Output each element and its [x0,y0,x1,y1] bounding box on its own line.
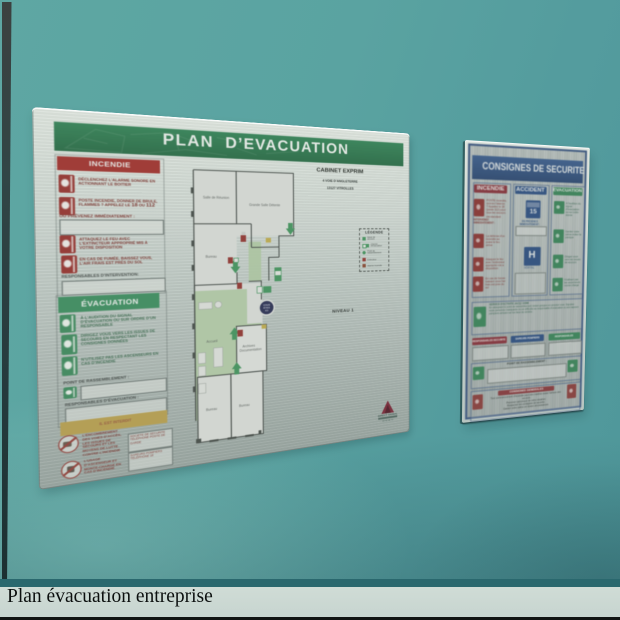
svg-text:Bureau: Bureau [206,254,218,258]
svg-text:04 42 46 72: 04 42 46 72 [382,418,393,422]
svg-text:Grande Salle Détente: Grande Salle Détente [249,203,281,207]
svg-text:Salle de Réunion: Salle de Réunion [203,195,230,199]
svg-text:ICI: ICI [265,309,268,312]
